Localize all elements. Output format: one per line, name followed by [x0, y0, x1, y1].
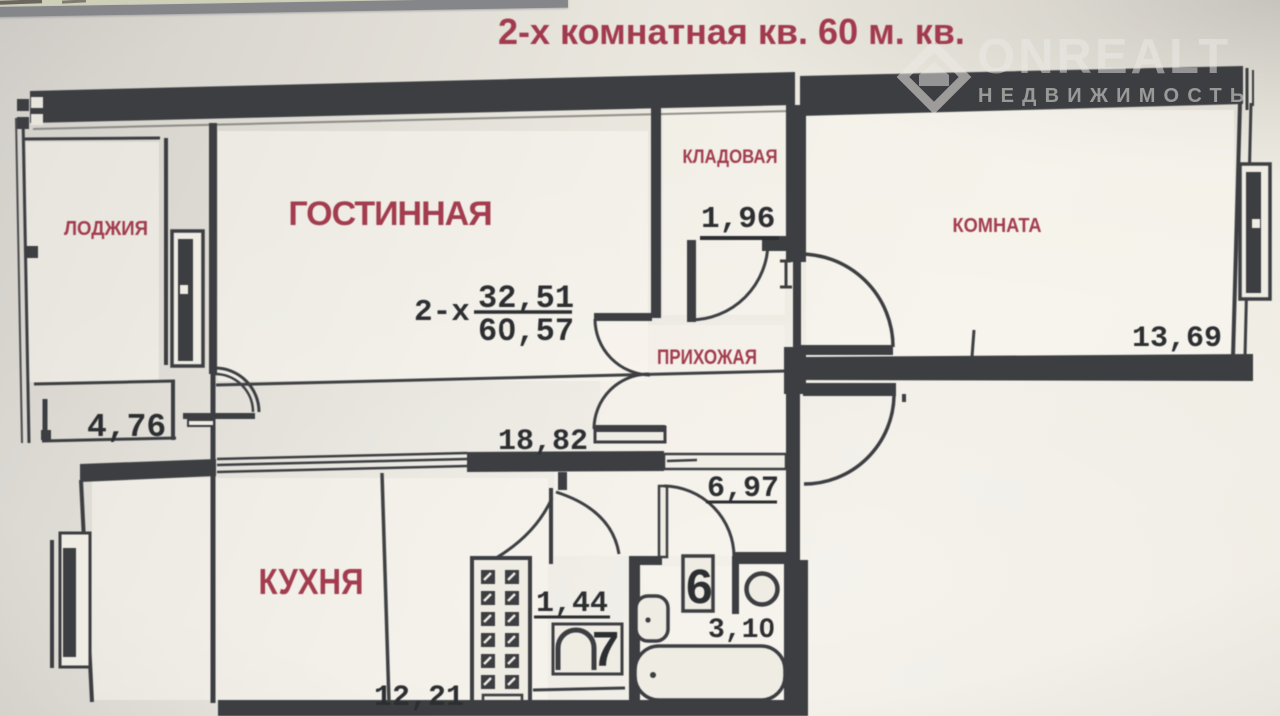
svg-text:ONREALT: ONREALT: [977, 30, 1231, 84]
svg-text:НЕДВИЖИМОСТЬ: НЕДВИЖИМОСТЬ: [978, 85, 1252, 107]
